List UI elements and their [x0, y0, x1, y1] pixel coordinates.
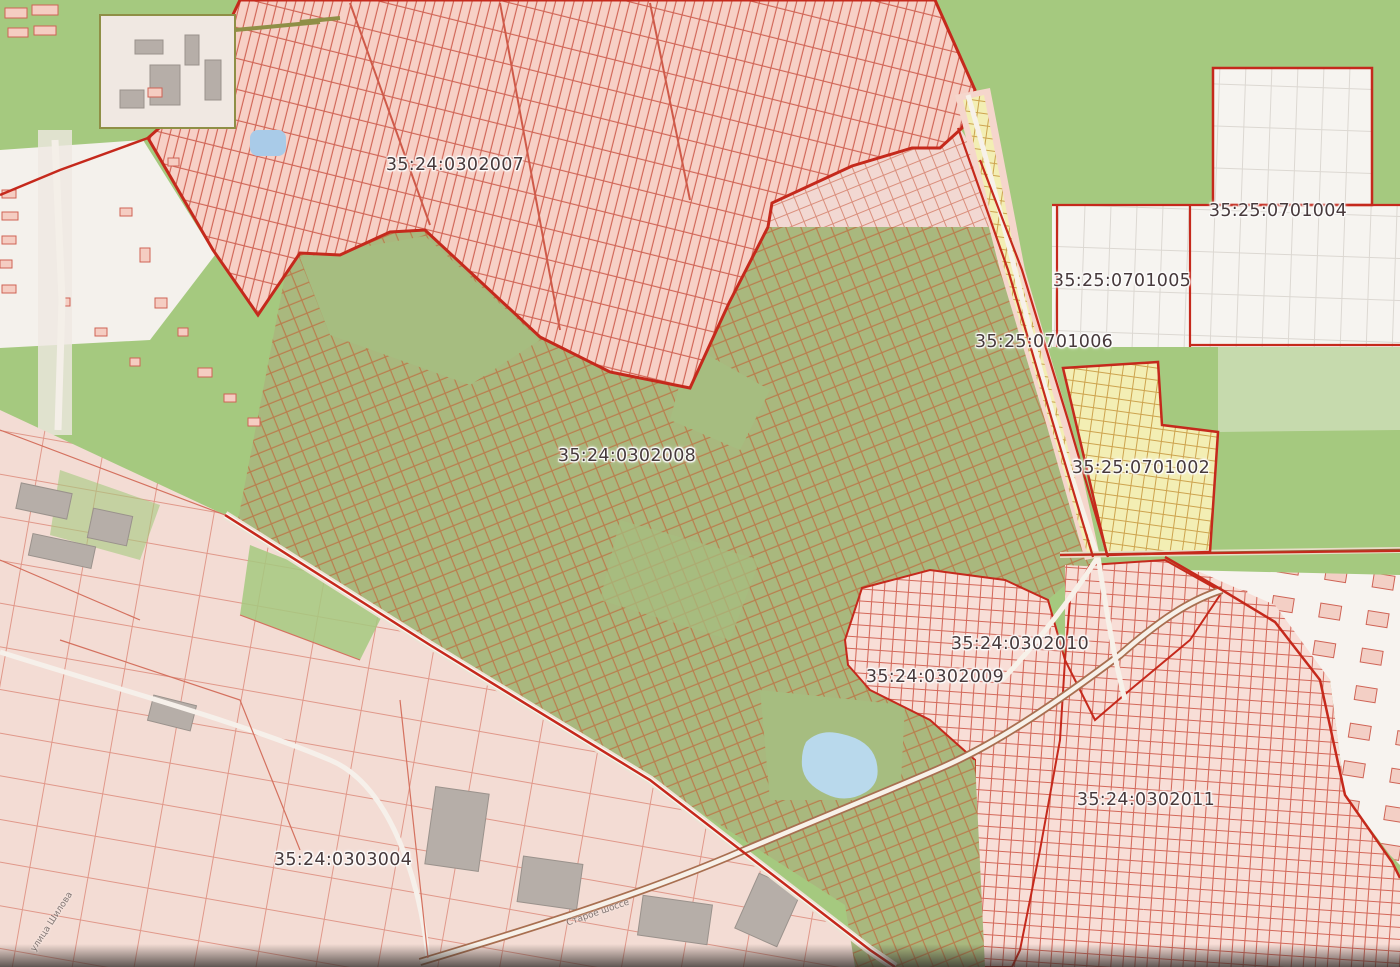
cadastral-quarter-label-0302007[interactable]: 35:24:0302007 [386, 155, 524, 175]
pale-area-right [1218, 347, 1400, 432]
small-pond [250, 130, 286, 156]
map-canvas[interactable]: 35:24:0302007 35:25:0701004 35:25:070100… [0, 0, 1400, 967]
cadastral-quarter-label-0701002[interactable]: 35:25:0701002 [1072, 458, 1210, 478]
cadastral-quarter-label-0302009[interactable]: 35:24:0302009 [866, 667, 1004, 687]
cadastral-quarter-label-0701006[interactable]: 35:25:0701006 [975, 332, 1113, 352]
region-35-25-0701004-area[interactable] [1213, 68, 1372, 205]
cadastral-quarter-label-0302010[interactable]: 35:24:0302010 [951, 634, 1089, 654]
map-tiles [0, 0, 1400, 967]
cadastral-quarter-label-0302008[interactable]: 35:24:0302008 [558, 446, 696, 466]
cadastral-quarter-label-0701005[interactable]: 35:25:0701005 [1053, 271, 1191, 291]
cadastral-quarter-label-0701004[interactable]: 35:25:0701004 [1209, 201, 1347, 221]
cadastral-quarter-label-0302011[interactable]: 35:24:0302011 [1077, 790, 1215, 810]
bottom-shadow [0, 944, 1400, 967]
cadastral-quarter-label-0303004[interactable]: 35:24:0303004 [274, 850, 412, 870]
